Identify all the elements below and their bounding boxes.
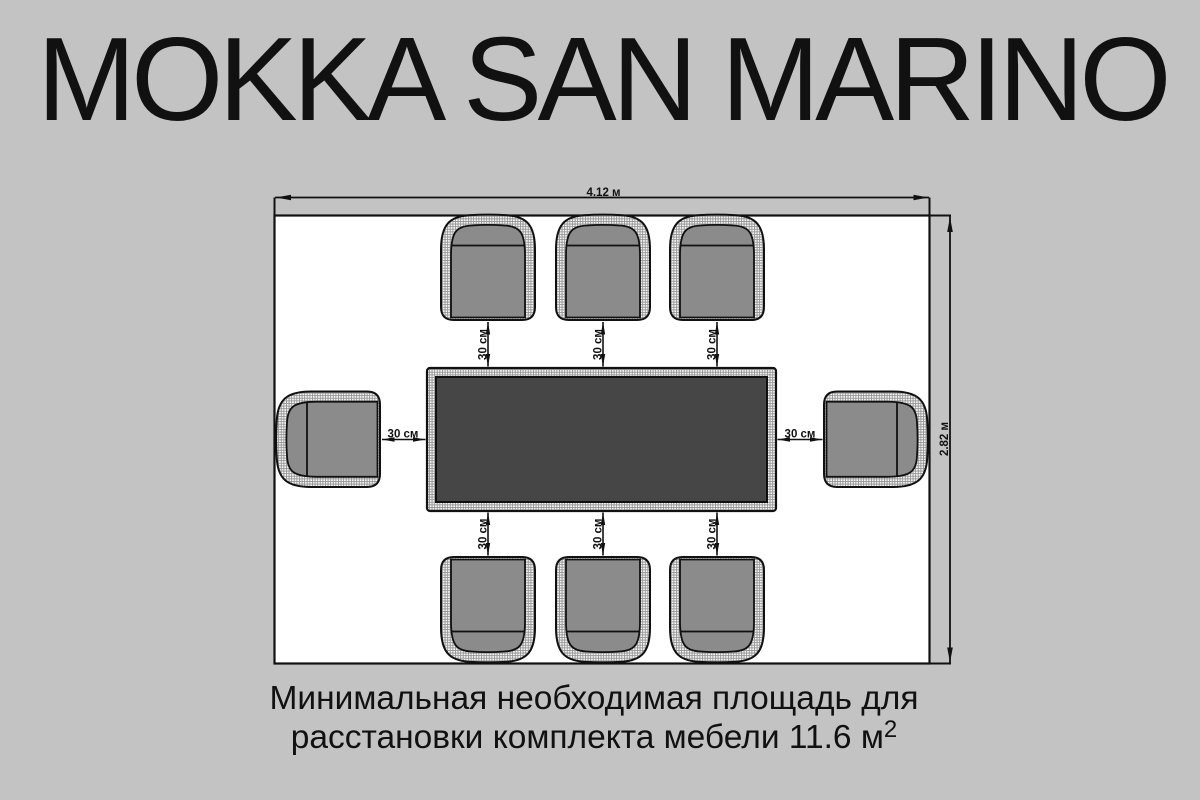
- svg-text:30 см: 30 см: [388, 429, 419, 441]
- svg-text:MOKKA SAN MARINO: MOKKA SAN MARINO: [37, 14, 1167, 146]
- svg-text:30 см: 30 см: [592, 519, 604, 550]
- svg-text:30 см: 30 см: [706, 519, 718, 550]
- svg-text:2.82 м: 2.82 м: [939, 422, 951, 456]
- svg-text:расстановки комплекта мебели 1: расстановки комплекта мебели 11.6 м2: [291, 716, 898, 756]
- svg-text:30 см: 30 см: [477, 329, 489, 360]
- svg-text:4.12 м: 4.12 м: [586, 187, 620, 199]
- svg-text:30 см: 30 см: [785, 429, 816, 441]
- svg-text:30 см: 30 см: [592, 329, 604, 360]
- svg-text:30 см: 30 см: [477, 519, 489, 550]
- svg-text:30 см: 30 см: [706, 329, 718, 360]
- svg-text:Минимальная необходимая площад: Минимальная необходимая площадь для: [270, 680, 919, 717]
